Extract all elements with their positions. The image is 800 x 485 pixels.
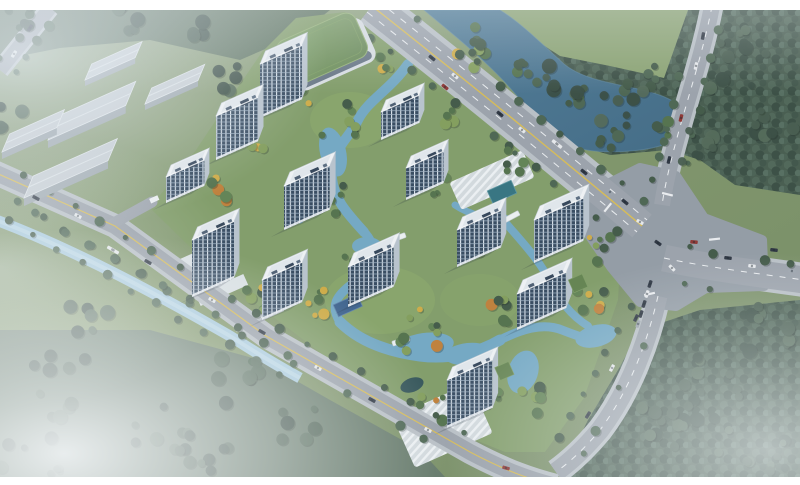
rendering-canvas — [0, 10, 800, 477]
fog-bottom-right — [0, 10, 800, 477]
aerial-rendering — [0, 0, 800, 485]
fog-overlay — [0, 10, 800, 477]
